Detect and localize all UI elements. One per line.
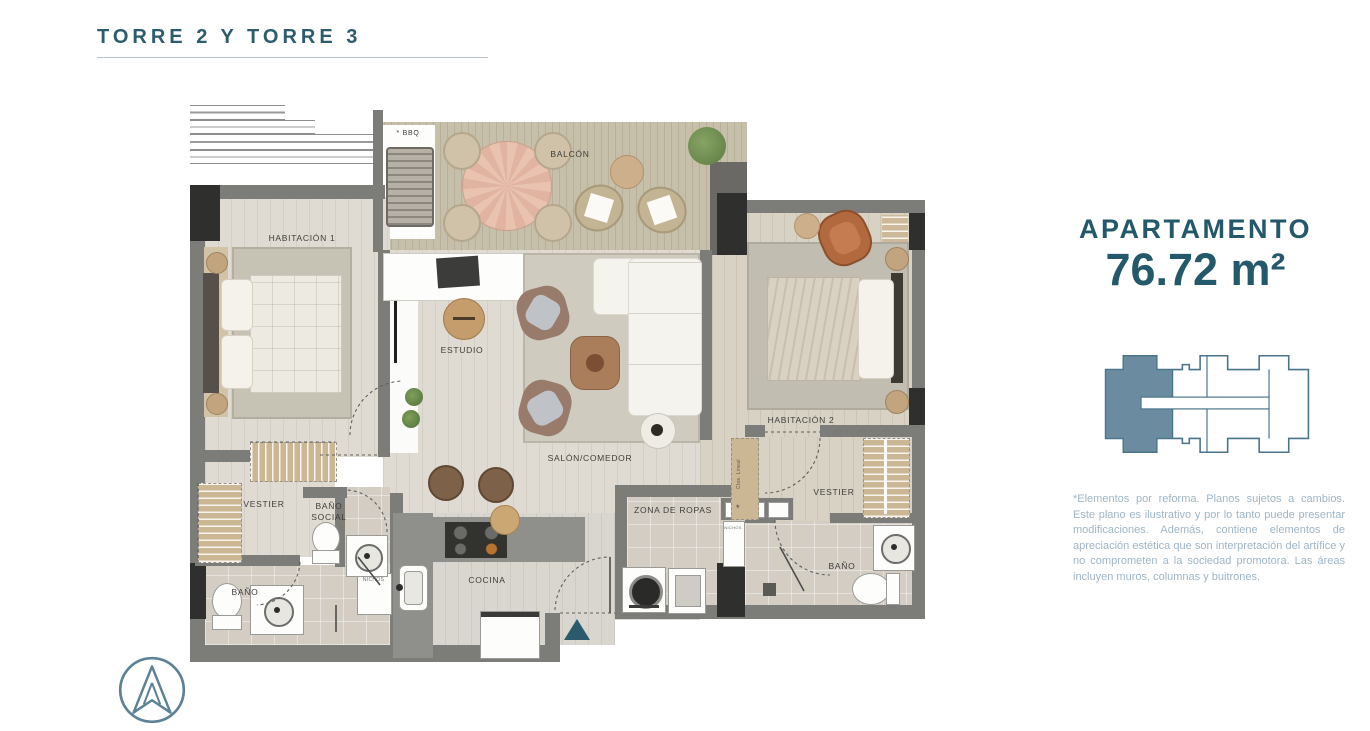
apartment-label: APARTAMENTO [1063, 214, 1328, 245]
disclaimer-text: *Elementos por reforma. Planos sujetos a… [1073, 492, 1345, 586]
label-zona-ropas: ZONA DE ROPAS [630, 505, 716, 516]
label-habitacion1: HABITACIÓN 1 [232, 233, 372, 244]
label-salon-comedor: SALÓN/COMEDOR [520, 453, 660, 464]
page-title: TORRE 2 Y TORRE 3 [97, 26, 361, 49]
label-bano1: BAÑO [210, 587, 280, 598]
keyplan-location-diagram [1093, 340, 1321, 468]
north-arrow-compass-icon [111, 649, 193, 731]
label-vestier2: VESTIER [788, 487, 880, 498]
label-bano2: BAÑO [802, 561, 882, 572]
label-habitacion2: HABITACIÓN 2 [740, 415, 862, 426]
label-cocina: COCINA [448, 575, 526, 586]
label-vestier1: VESTIER [218, 499, 310, 510]
label-estudio: ESTUDIO [422, 345, 502, 356]
label-bano-social: BAÑO SOCIAL [298, 501, 360, 522]
title-underline [97, 57, 488, 58]
apartment-area: 76.72 m² [1063, 244, 1328, 296]
page: { "header": { "title": "TORRE 2 Y TORRE … [0, 0, 1370, 731]
doors-overlay [190, 105, 935, 675]
label-bbq: * BBQ [382, 130, 434, 139]
floor-plan: Clos. Lineal * NICHOS NICHOS [190, 105, 935, 675]
label-balcon: BALCÓN [530, 149, 610, 160]
